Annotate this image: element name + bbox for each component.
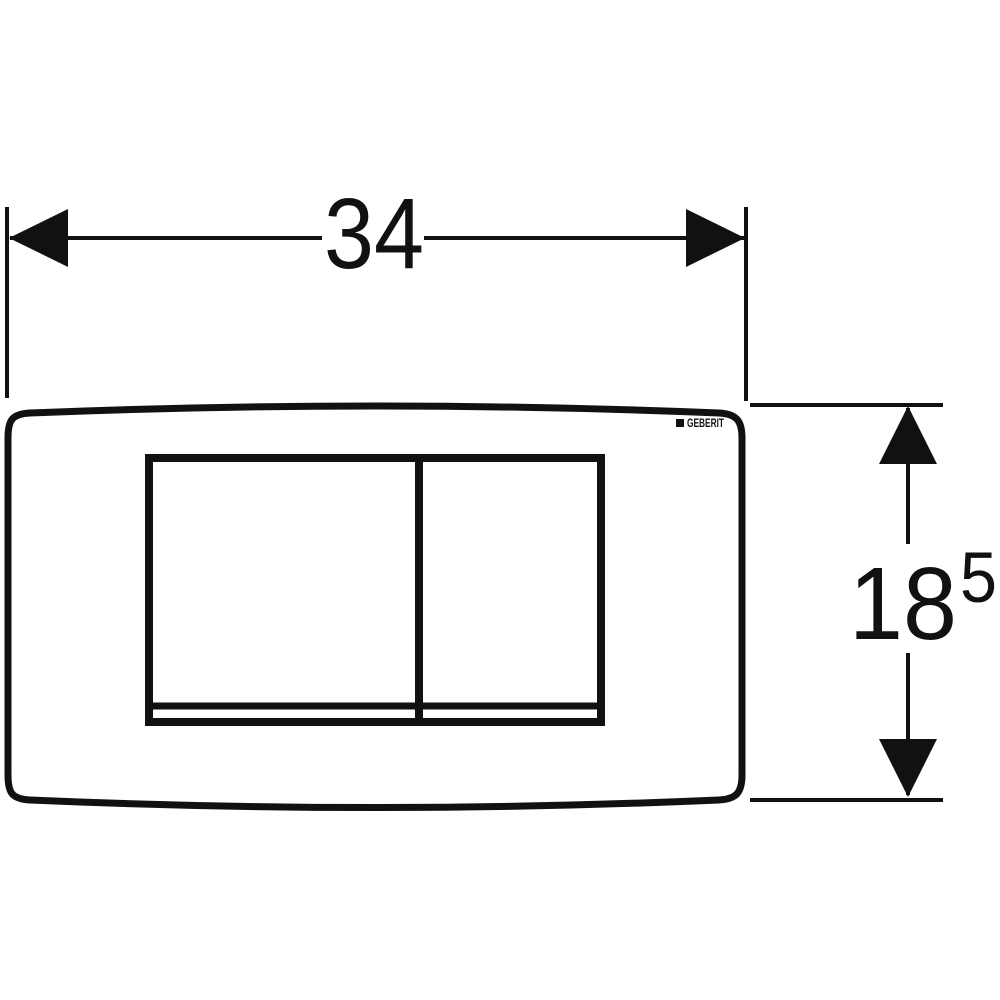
brand-logo-text: GEBERIT (687, 416, 724, 430)
height-dimension-superscript: 5 (960, 539, 997, 618)
height-dimension: 18 5 (750, 405, 997, 800)
flush-buttons (149, 458, 601, 722)
technical-drawing-canvas: 34 18 5 GEBERIT (0, 0, 1000, 1000)
large-flush-button (153, 462, 411, 702)
arrowhead-left-icon (9, 209, 68, 267)
flush-plate: GEBERIT (8, 406, 742, 808)
brand-square-icon (676, 419, 684, 427)
width-dimension-label: 34 (324, 178, 424, 290)
arrowhead-right-icon (686, 209, 745, 267)
arrowhead-down-icon (879, 739, 937, 797)
height-dimension-label: 18 (849, 546, 957, 661)
small-flush-button (423, 462, 597, 702)
arrowhead-up-icon (879, 406, 937, 464)
width-dimension: 34 (7, 178, 746, 401)
flush-plate-dimension-diagram: 34 18 5 GEBERIT (0, 0, 1000, 1000)
